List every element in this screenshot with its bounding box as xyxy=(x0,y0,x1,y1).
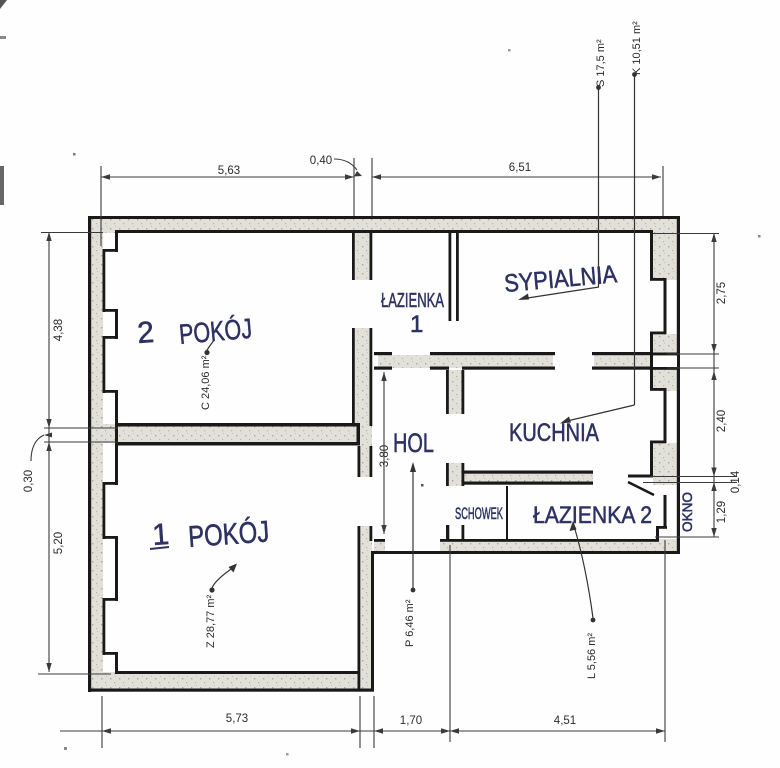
svg-text:K 10,51 m²: K 10,51 m² xyxy=(631,21,643,75)
svg-text:POKÓJ: POKÓJ xyxy=(187,515,270,554)
svg-text:5,63: 5,63 xyxy=(218,165,240,177)
svg-text:5,20: 5,20 xyxy=(53,532,65,554)
svg-text:SYPIALNIA: SYPIALNIA xyxy=(503,260,618,298)
svg-text:0,30: 0,30 xyxy=(23,470,35,492)
svg-text:HOL: HOL xyxy=(393,428,434,458)
svg-text:ŁAZIENKA: ŁAZIENKA xyxy=(381,290,444,312)
svg-text:2,75: 2,75 xyxy=(716,282,728,304)
svg-text:1,70: 1,70 xyxy=(400,715,422,727)
svg-text:3,80: 3,80 xyxy=(379,445,391,467)
svg-text:4,38: 4,38 xyxy=(53,319,65,341)
svg-text:1: 1 xyxy=(410,311,423,338)
svg-text:P 6,46 m²: P 6,46 m² xyxy=(404,599,416,647)
svg-text:4,51: 4,51 xyxy=(554,715,576,727)
svg-text:SCHOWEK: SCHOWEK xyxy=(455,505,503,523)
svg-text:ŁAZIENKA 2: ŁAZIENKA 2 xyxy=(533,502,652,529)
svg-text:0,14: 0,14 xyxy=(730,470,742,493)
svg-text:1,29: 1,29 xyxy=(716,501,728,523)
svg-text:KUCHNIA: KUCHNIA xyxy=(509,419,599,447)
svg-text:6,51: 6,51 xyxy=(509,162,531,174)
svg-text:L 5,56 m²: L 5,56 m² xyxy=(586,633,598,679)
svg-text:2,40: 2,40 xyxy=(716,410,728,432)
svg-text:0,40: 0,40 xyxy=(310,155,332,167)
svg-text:S 17,5 m²: S 17,5 m² xyxy=(595,39,607,87)
svg-text:5,73: 5,73 xyxy=(226,713,248,725)
svg-text:Z 28,77 m²: Z 28,77 m² xyxy=(205,594,217,648)
svg-text:OKNO: OKNO xyxy=(679,492,695,532)
svg-text:C 24,06 m²: C 24,06 m² xyxy=(200,355,212,410)
svg-text:POKÓJ: POKÓJ xyxy=(178,313,253,350)
svg-text:2: 2 xyxy=(136,316,155,350)
